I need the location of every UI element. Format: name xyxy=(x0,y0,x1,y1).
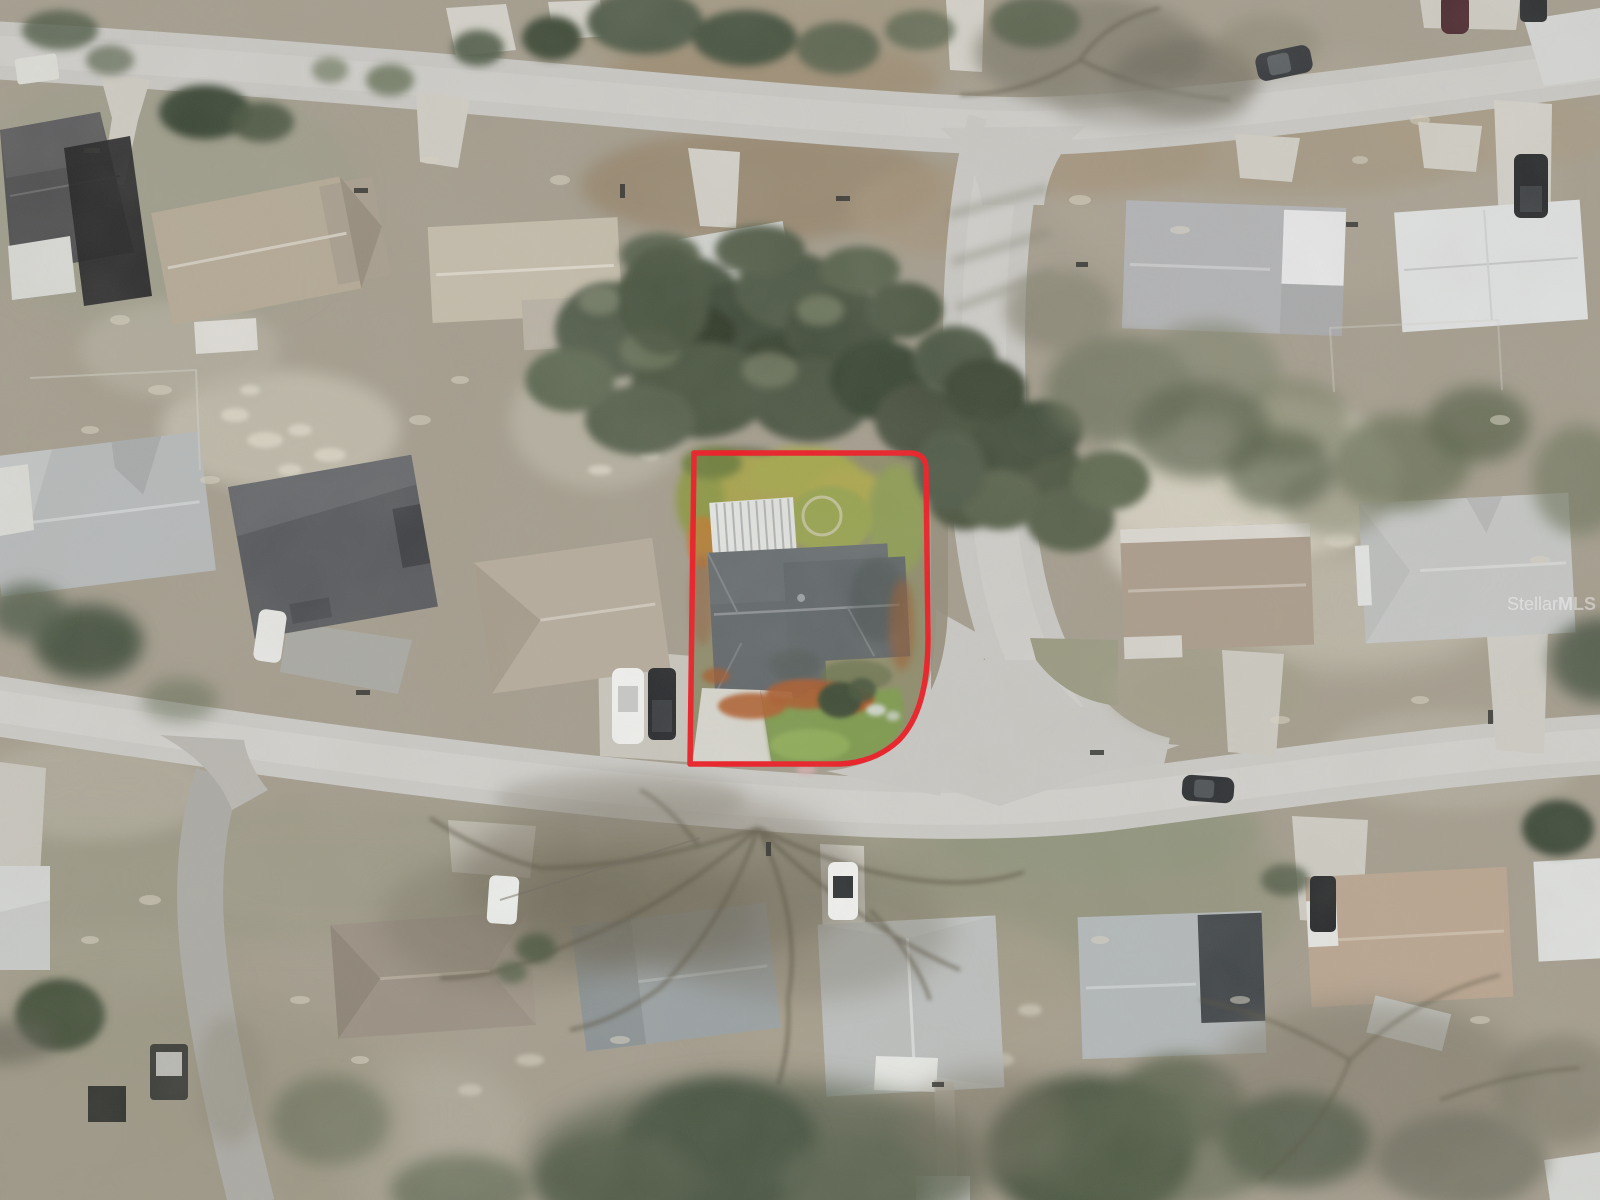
svg-text:StellarMLS: StellarMLS xyxy=(1507,594,1596,614)
